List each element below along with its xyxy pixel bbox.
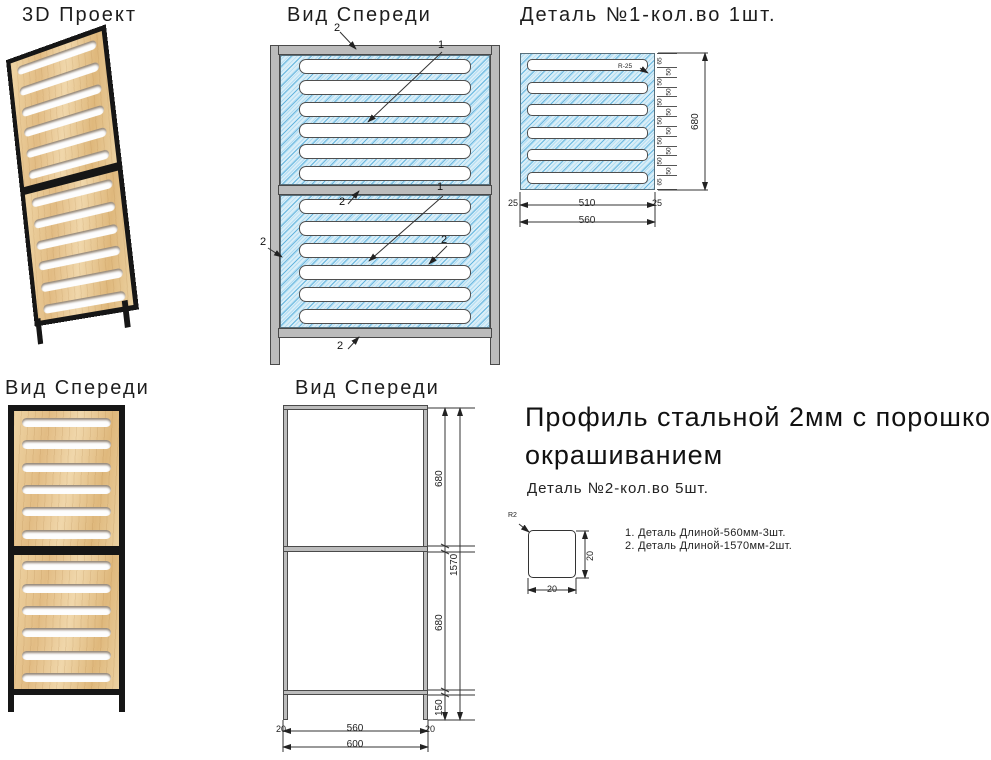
chain-value: 50 xyxy=(657,107,677,117)
frame-view-title: Вид Спереди xyxy=(295,377,440,400)
callout-left-bar: 2 xyxy=(260,236,266,248)
profile-height-dim: 20 xyxy=(585,530,595,582)
slot xyxy=(22,673,111,682)
slot xyxy=(527,149,648,161)
parts-note-line: 2. Деталь Длиной-1570мм-2шт. xyxy=(625,540,865,553)
slot xyxy=(299,123,471,138)
slot xyxy=(38,245,120,271)
panel-front-render xyxy=(8,405,125,695)
slot xyxy=(299,80,471,95)
left-leg xyxy=(8,695,14,712)
slot xyxy=(41,268,124,293)
middle-rail-bar xyxy=(283,546,428,552)
parts-notes: 1. Деталь Длиной-560мм-3шт.2. Деталь Дли… xyxy=(625,527,865,553)
slot xyxy=(527,82,648,94)
chain-value: 50 xyxy=(657,156,677,166)
dim-inner-width: 560 xyxy=(345,723,366,734)
left-leg xyxy=(35,318,43,344)
wood-panel-upper xyxy=(14,411,119,546)
lower-hatched-panel xyxy=(280,195,490,328)
chain-value: 50 xyxy=(657,68,677,78)
bottom-rail-bar xyxy=(278,328,492,338)
chain-value: 50 xyxy=(657,147,677,157)
callout-lower-panel: 1 xyxy=(437,181,443,193)
dim-total-width: 600 xyxy=(345,739,366,750)
dim-total-width: 560 xyxy=(577,215,598,226)
slot xyxy=(527,104,648,116)
upper-hatched-panel xyxy=(280,55,490,185)
slot xyxy=(22,628,111,637)
wood-panel-lower xyxy=(14,555,119,690)
slot xyxy=(22,440,111,449)
slot xyxy=(34,201,116,229)
callout-upper-panel: 1 xyxy=(438,39,444,51)
dim-lower-section: 680 xyxy=(434,556,445,690)
dim-total-height: 1570 xyxy=(449,405,460,724)
dimension-chain: 65505050505050505050505065 xyxy=(657,53,677,190)
profile-width-dim: 20 xyxy=(545,584,559,594)
callout-mid-bar: 2 xyxy=(339,196,345,208)
top-rail-bar xyxy=(278,45,492,55)
chain-value: 50 xyxy=(657,78,677,88)
slot xyxy=(299,59,471,74)
wood-panel-upper xyxy=(11,31,117,187)
slot xyxy=(299,265,471,280)
middle-rail-bar xyxy=(278,185,492,195)
dim-total-height: 680 xyxy=(690,53,701,190)
view3d-title: 3D Проект xyxy=(22,4,137,27)
slot xyxy=(22,530,111,539)
dim-right-offset: 20 xyxy=(423,724,437,734)
right-profile-bar xyxy=(423,405,428,720)
chain-value: 50 xyxy=(657,88,677,98)
slot xyxy=(22,584,111,593)
middle-rail xyxy=(14,546,119,555)
legs xyxy=(8,695,125,712)
chain-value: 50 xyxy=(657,137,677,147)
radius-label: R-25 xyxy=(618,63,632,70)
slot xyxy=(22,651,111,660)
spec-headline-line1: Профиль стальной 2мм с порошковым xyxy=(525,402,991,433)
chain-value: 50 xyxy=(657,166,677,176)
spec-headline-line2: окрашиванием xyxy=(525,440,723,471)
slot xyxy=(22,485,111,494)
dim-margin-right: 25 xyxy=(650,198,664,208)
slot xyxy=(36,223,118,250)
panel-3d xyxy=(6,24,139,326)
drawing-sheet: 3D Проект Вид Спереди 2 1 2 2 2 1 2 xyxy=(0,0,991,760)
front-top-title: Вид Спереди xyxy=(287,4,432,27)
slot xyxy=(527,127,648,139)
chain-value: 65 xyxy=(657,176,677,190)
callout-top-bar: 2 xyxy=(334,22,340,34)
slot xyxy=(22,463,111,472)
detail1-title: Деталь №1-кол.во 1шт. xyxy=(520,4,777,27)
slot xyxy=(22,606,111,615)
dim-left-offset: 20 xyxy=(274,724,288,734)
chain-value: 65 xyxy=(657,53,677,68)
chain-value: 50 xyxy=(657,127,677,137)
dim-leg-height: 150 xyxy=(434,692,445,724)
right-profile-bar xyxy=(490,45,500,365)
profile-cross-section xyxy=(528,530,576,578)
slot xyxy=(299,287,471,302)
detail1-panel xyxy=(520,53,655,190)
left-profile-bar xyxy=(283,405,288,720)
front-bottom-title: Вид Спереди xyxy=(5,377,150,400)
chain-value: 50 xyxy=(657,97,677,107)
top-rail-bar xyxy=(283,405,428,410)
chain-value: 50 xyxy=(657,117,677,127)
left-profile-bar xyxy=(270,45,280,365)
right-leg xyxy=(119,695,125,712)
bottom-rail-bar xyxy=(283,690,428,695)
parts-note-line: 1. Деталь Длиной-560мм-3шт. xyxy=(625,527,865,540)
callout-bottom-bar: 2 xyxy=(337,340,343,352)
wood-panel-lower xyxy=(25,171,134,321)
slot xyxy=(527,172,648,184)
profile-radius-label: R2 xyxy=(508,512,517,519)
dim-slot-length: 510 xyxy=(577,198,598,209)
slot xyxy=(299,166,471,181)
slot xyxy=(22,561,111,570)
dim-upper-section: 680 xyxy=(434,412,445,546)
slot xyxy=(299,199,471,214)
slot xyxy=(299,102,471,117)
panel-3d-view xyxy=(6,34,136,364)
slot xyxy=(299,144,471,159)
slot xyxy=(22,507,111,516)
slot xyxy=(299,309,471,324)
slot xyxy=(22,418,111,427)
spec-subtitle: Деталь №2-кол.во 5шт. xyxy=(527,480,709,497)
dim-margin-left: 25 xyxy=(506,198,520,208)
callout-right-bar: 2 xyxy=(441,234,447,246)
